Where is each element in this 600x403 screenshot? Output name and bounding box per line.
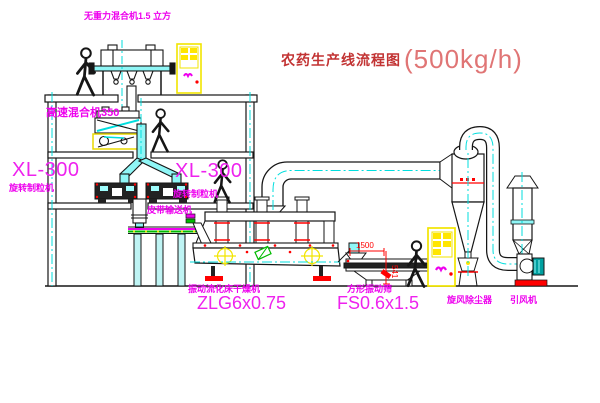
label-granulator-right: 旋转制粒机 [173, 190, 218, 199]
granulator-left-drawing [95, 183, 137, 203]
control-cabinet-1 [177, 44, 201, 93]
page-title: 农药生产线流程图 (500kg/h) [281, 44, 523, 75]
control-cabinet-2 [428, 228, 455, 286]
screen-width-dim: 1500 [356, 241, 374, 250]
flow-diagram-canvas: 1500 541 [0, 0, 600, 403]
label-granulator-left: 旋转制粒机 [9, 184, 54, 193]
label-screen-model: FS0.6x1.5 [337, 294, 419, 313]
label-high-speed-mixer: 高速混合机350 [46, 108, 119, 120]
label-cyclone: 旋风除尘器 [447, 296, 492, 305]
screen-height-dim: 541 [390, 265, 399, 279]
person-floor2 [153, 109, 169, 151]
fan-drawing [515, 254, 547, 286]
belt-conveyor-drawing [128, 227, 198, 286]
label-dryer-model: ZLG6x0.75 [197, 294, 286, 313]
label-fan: 引风机 [510, 296, 537, 305]
discharge-chute [131, 199, 148, 228]
duct-dryer-cyclone [260, 162, 450, 214]
label-xl300-left: XL-300 [12, 160, 80, 181]
label-xl300-right: XL-300 [175, 161, 243, 182]
label-belt-conveyor: 皮带输送机 [147, 206, 192, 215]
label-gravity-mixer: 无重力混合机1.5 立方 [84, 12, 171, 21]
title-capacity: (500kg/h) [404, 44, 523, 75]
title-text: 农药生产线流程图 [281, 50, 401, 70]
